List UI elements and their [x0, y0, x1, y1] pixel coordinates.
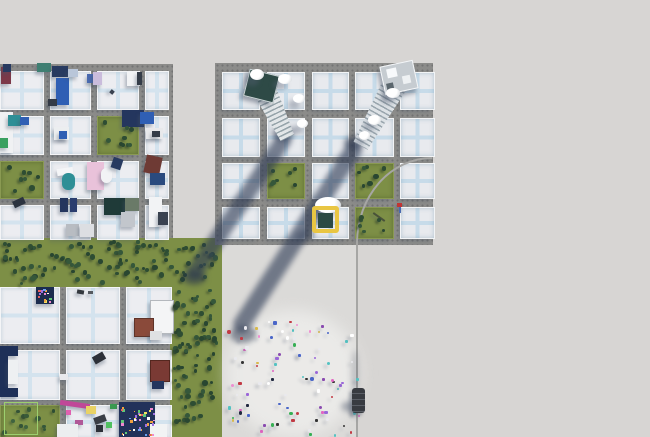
market-detail — [121, 409, 123, 411]
tree — [13, 269, 18, 274]
tree — [177, 331, 183, 337]
market-detail — [122, 433, 124, 435]
building[interactable] — [399, 207, 401, 213]
tree — [206, 335, 211, 340]
tree — [153, 265, 158, 270]
white-canopy — [359, 131, 370, 140]
tree — [15, 256, 18, 259]
tree — [367, 181, 373, 187]
pedestrian — [227, 330, 230, 333]
park-grass — [170, 287, 222, 437]
white-canopy — [368, 115, 381, 125]
selected-building[interactable] — [318, 213, 333, 228]
tree — [125, 259, 128, 262]
building[interactable] — [96, 425, 103, 432]
zone-preview-cube[interactable] — [4, 402, 38, 435]
market-detail — [147, 417, 149, 419]
tree — [52, 409, 55, 412]
city-block[interactable] — [222, 118, 260, 157]
building[interactable] — [20, 117, 29, 125]
pedestrian — [291, 419, 294, 422]
tree — [202, 380, 207, 385]
market-detail — [149, 410, 151, 412]
market-detail — [134, 419, 136, 421]
tree — [195, 319, 199, 323]
market-detail — [152, 423, 155, 426]
tree — [362, 184, 365, 187]
market-detail — [152, 434, 154, 436]
tree — [184, 405, 187, 408]
pedestrian — [228, 406, 232, 410]
building[interactable] — [66, 410, 71, 415]
tree — [118, 250, 122, 254]
city-block[interactable] — [312, 72, 349, 110]
tree — [23, 277, 27, 281]
tree — [178, 344, 182, 348]
market-detail — [134, 411, 136, 413]
building[interactable] — [152, 381, 164, 389]
tree — [194, 369, 198, 373]
market-detail — [139, 419, 141, 421]
pedestrian — [270, 336, 273, 339]
pedestrian — [321, 325, 324, 328]
tree — [135, 267, 139, 271]
building[interactable] — [110, 404, 117, 409]
city-block[interactable] — [400, 118, 435, 157]
tree — [129, 127, 134, 132]
pedestrian — [305, 378, 307, 380]
pedestrian — [271, 423, 274, 426]
tree — [175, 270, 179, 274]
tree — [90, 254, 95, 259]
tree — [178, 419, 181, 422]
tree — [270, 182, 274, 186]
building[interactable] — [86, 406, 96, 414]
tree — [382, 166, 387, 171]
pedestrian — [244, 326, 247, 329]
market-detail — [125, 432, 127, 434]
tree — [362, 166, 365, 169]
pedestrian — [263, 424, 266, 427]
market-detail — [129, 430, 131, 432]
tree — [193, 297, 198, 302]
city-block[interactable] — [66, 287, 120, 344]
tree — [29, 264, 34, 269]
building[interactable] — [80, 224, 94, 237]
shadow-blob — [295, 230, 314, 242]
market-detail — [145, 424, 148, 427]
shadow-blob — [182, 270, 206, 285]
tree — [199, 311, 203, 315]
tree — [82, 245, 85, 248]
tree — [198, 414, 202, 418]
vehicle[interactable] — [352, 388, 365, 413]
pedestrian — [296, 412, 299, 415]
building[interactable] — [52, 66, 68, 77]
pedestrian — [267, 382, 270, 385]
market-detail — [138, 429, 141, 432]
building[interactable] — [0, 354, 8, 388]
market-detail — [49, 301, 51, 303]
building[interactable] — [62, 173, 75, 190]
pedestrian — [247, 414, 250, 417]
building[interactable] — [3, 64, 11, 72]
white-canopy — [297, 119, 308, 128]
pedestrian — [310, 377, 313, 380]
tree — [43, 267, 47, 271]
tree — [176, 383, 181, 388]
shadow-blob — [230, 326, 256, 343]
building[interactable] — [158, 212, 168, 225]
tree — [185, 394, 190, 399]
building[interactable] — [150, 173, 165, 185]
market-detail — [133, 429, 135, 431]
tree — [201, 389, 206, 394]
roof-panel — [386, 67, 398, 78]
white-canopy — [293, 94, 305, 103]
tree — [21, 266, 26, 271]
pedestrian — [236, 394, 238, 396]
market-detail — [47, 293, 49, 295]
tree — [37, 244, 42, 249]
pedestrian — [234, 357, 237, 360]
tree — [169, 265, 173, 269]
tree — [212, 328, 217, 333]
market-detail — [130, 420, 132, 422]
tree — [29, 185, 35, 191]
pedestrian — [350, 431, 352, 433]
market-detail — [153, 420, 155, 422]
tree — [196, 354, 199, 357]
pedestrian — [273, 321, 277, 325]
pedestrian — [240, 337, 243, 340]
roof-panel — [402, 75, 411, 84]
building[interactable] — [137, 72, 142, 85]
pedestrian — [275, 357, 278, 360]
building[interactable] — [70, 198, 77, 212]
tree — [293, 167, 297, 171]
market-detail — [143, 414, 146, 417]
tree — [190, 401, 196, 407]
pedestrian — [238, 382, 242, 386]
pedestrian — [276, 423, 278, 425]
tree — [69, 244, 74, 249]
building[interactable] — [150, 360, 170, 382]
tree — [373, 174, 379, 180]
market-detail — [129, 418, 131, 420]
pedestrian — [245, 346, 249, 350]
market-detail — [141, 414, 143, 416]
building[interactable] — [60, 198, 68, 212]
tree — [211, 299, 215, 303]
building[interactable] — [152, 131, 160, 137]
building[interactable] — [68, 69, 78, 77]
tree — [184, 246, 188, 250]
pedestrian — [308, 429, 311, 432]
building[interactable] — [60, 374, 68, 380]
market-detail — [44, 293, 46, 295]
tree — [109, 241, 113, 245]
tree — [3, 255, 8, 260]
pedestrian — [314, 357, 316, 359]
tree — [202, 328, 206, 332]
pedestrian — [246, 404, 249, 407]
building[interactable] — [88, 291, 93, 294]
tree — [53, 266, 56, 269]
building[interactable] — [66, 224, 79, 236]
building[interactable] — [56, 78, 69, 105]
tree — [204, 321, 209, 326]
building[interactable] — [150, 331, 162, 340]
pedestrian — [345, 340, 348, 343]
tree — [357, 171, 360, 174]
tree — [66, 259, 71, 264]
tree — [192, 416, 197, 421]
building[interactable] — [0, 388, 18, 397]
tree — [136, 240, 139, 243]
tree — [275, 179, 278, 182]
market-detail — [39, 293, 41, 295]
pedestrian — [337, 388, 339, 390]
white-canopy — [250, 69, 264, 80]
pedestrian — [274, 363, 277, 366]
tree — [36, 175, 40, 179]
white-canopy — [278, 74, 292, 84]
tree — [71, 270, 75, 274]
tree — [9, 257, 12, 260]
market-detail — [44, 299, 46, 301]
tree — [122, 136, 126, 140]
pedestrian — [260, 430, 263, 433]
market-detail — [121, 423, 123, 425]
building[interactable] — [8, 360, 18, 384]
tree — [128, 143, 132, 147]
building[interactable] — [59, 131, 67, 139]
tree — [28, 244, 33, 249]
pedestrian — [284, 394, 286, 396]
building[interactable] — [0, 138, 8, 148]
building[interactable] — [125, 198, 139, 211]
tree — [98, 259, 103, 264]
pedestrian — [272, 370, 274, 372]
building[interactable] — [140, 112, 154, 124]
building[interactable] — [37, 63, 51, 72]
market-detail — [43, 289, 45, 291]
pedestrian — [319, 406, 322, 409]
tree — [181, 303, 186, 308]
market-detail — [49, 298, 52, 301]
pedestrian — [317, 389, 321, 393]
tree — [115, 272, 118, 275]
game-viewport[interactable] — [0, 0, 650, 437]
city-block[interactable] — [145, 71, 169, 110]
pedestrian — [324, 411, 328, 415]
tree — [107, 265, 112, 270]
tree — [197, 400, 201, 404]
pedestrian — [358, 415, 360, 417]
market-detail — [145, 434, 147, 436]
tree — [100, 280, 105, 285]
pedestrian — [327, 362, 330, 365]
building[interactable] — [48, 99, 57, 106]
pedestrian — [350, 334, 353, 337]
pedestrian — [258, 382, 261, 385]
market-detail — [149, 434, 151, 436]
tree — [207, 357, 211, 361]
tree — [5, 249, 9, 253]
tree — [362, 230, 365, 233]
pedestrian — [278, 353, 281, 356]
market-detail — [150, 408, 152, 410]
city-block[interactable] — [0, 205, 44, 240]
pedestrian — [271, 378, 274, 381]
market-detail — [153, 413, 156, 416]
tree — [159, 272, 164, 277]
pedestrian — [351, 361, 353, 363]
tree — [27, 171, 32, 176]
market-detail — [135, 415, 138, 418]
building[interactable] — [93, 72, 102, 85]
market-detail — [139, 414, 142, 417]
pedestrian — [315, 419, 318, 422]
tree — [185, 413, 190, 418]
pedestrian — [298, 354, 301, 357]
tree — [23, 248, 27, 252]
pedestrian — [256, 362, 258, 364]
tree — [209, 314, 212, 317]
tree — [205, 305, 209, 309]
pedestrian — [232, 419, 235, 422]
building[interactable] — [121, 212, 135, 227]
market-detail — [38, 296, 40, 298]
building[interactable] — [57, 424, 78, 437]
pedestrian — [286, 407, 288, 409]
tree — [210, 395, 215, 400]
building[interactable] — [106, 422, 112, 428]
tree — [30, 276, 35, 281]
pedestrian — [326, 418, 329, 421]
pedestrian — [293, 337, 296, 340]
tree — [207, 365, 212, 370]
white-canopy — [386, 88, 400, 98]
building[interactable] — [101, 168, 112, 183]
tree — [164, 258, 168, 262]
tree — [185, 388, 190, 393]
pedestrian — [322, 378, 325, 381]
